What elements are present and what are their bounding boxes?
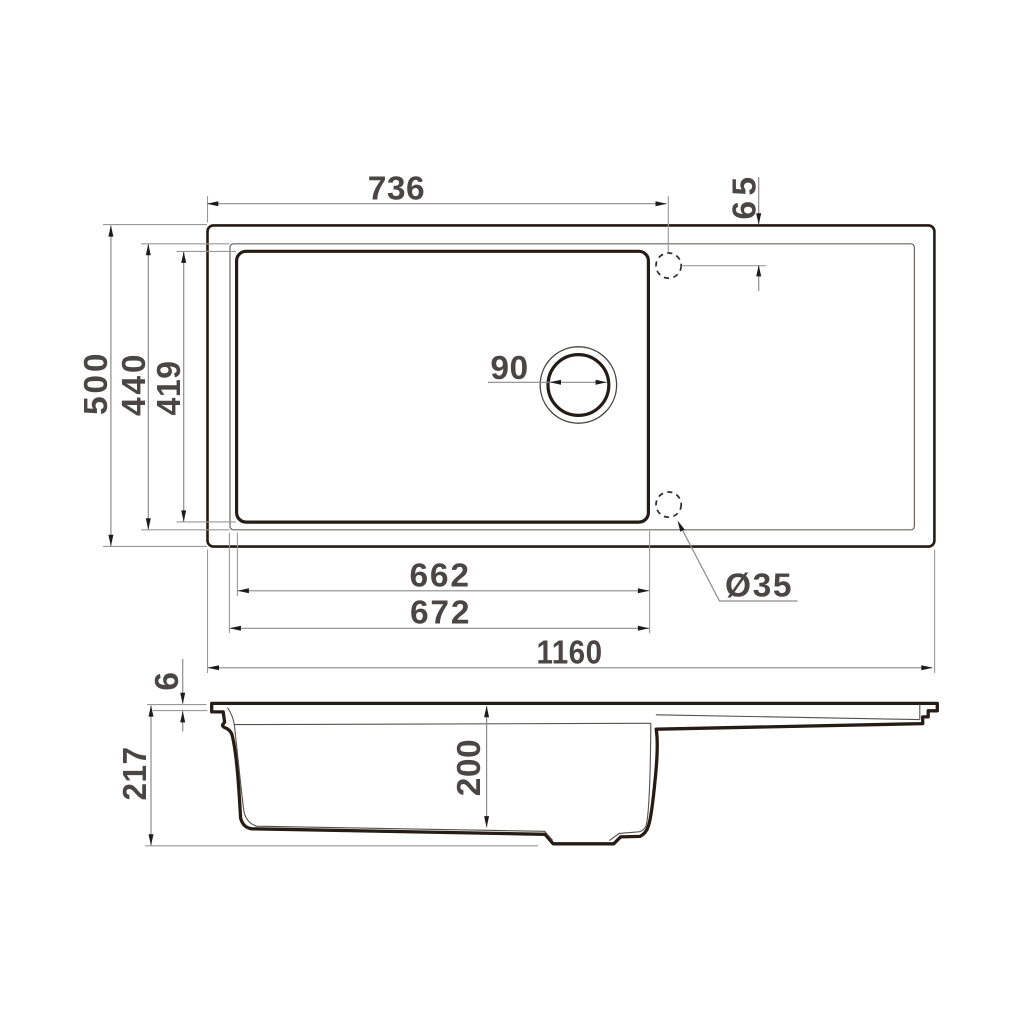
svg-text:672: 672 <box>410 595 470 632</box>
svg-text:Ø35: Ø35 <box>725 568 792 605</box>
svg-text:200: 200 <box>451 739 488 796</box>
svg-text:1160: 1160 <box>537 635 603 672</box>
svg-text:736: 736 <box>368 171 425 208</box>
svg-text:6: 6 <box>149 671 186 690</box>
svg-text:217: 217 <box>117 747 154 801</box>
svg-text:90: 90 <box>490 350 528 387</box>
svg-text:419: 419 <box>151 361 188 416</box>
svg-text:500: 500 <box>78 353 115 415</box>
svg-text:440: 440 <box>116 354 153 416</box>
svg-text:662: 662 <box>410 558 470 595</box>
